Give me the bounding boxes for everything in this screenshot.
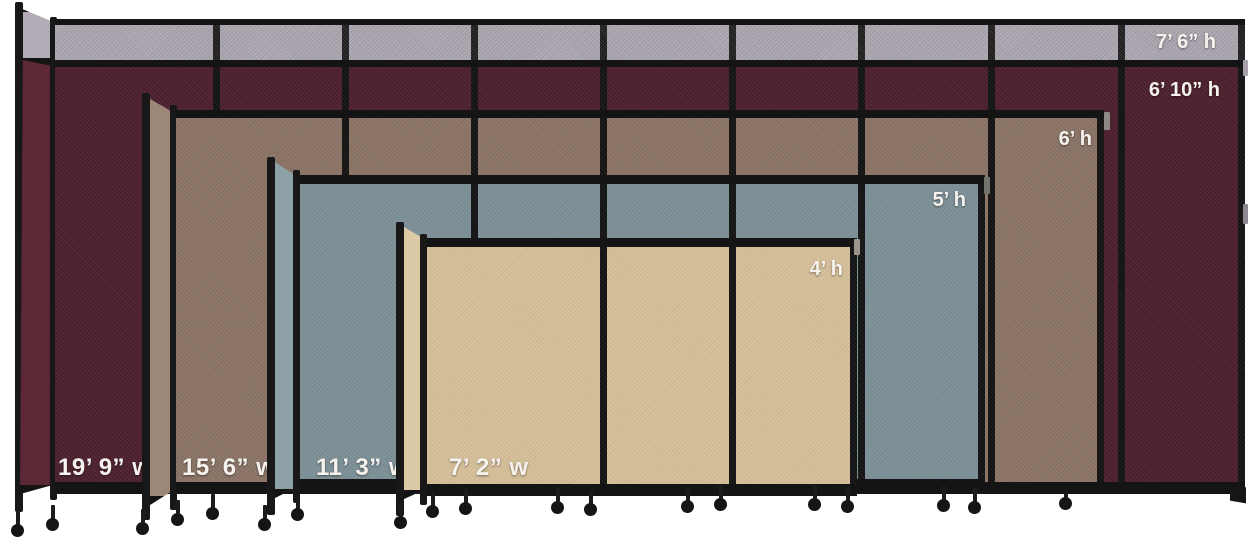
corner-post	[396, 222, 404, 516]
partition-size-comparison-image: 7’ 6” h 6’ 10” h 19’ 9” w 6’ h 15’ 6” w …	[0, 0, 1248, 542]
caster-wheel	[583, 490, 598, 516]
caster-wheel	[807, 485, 822, 511]
caster-wheel	[393, 503, 408, 529]
partition-sand: 4’ h 7’ 2” w	[0, 0, 1248, 542]
height-label: 4’ h	[763, 259, 843, 280]
width-label: 7’ 2” w	[449, 455, 529, 480]
caster-wheel	[713, 485, 728, 511]
caster-wheel	[425, 492, 440, 518]
caster-wheel	[840, 487, 855, 513]
caster-wheel	[458, 489, 473, 515]
connector-tab	[854, 239, 860, 255]
hinge-post	[420, 234, 427, 505]
caster-wheel	[680, 487, 695, 513]
caster-wheel	[550, 488, 565, 514]
